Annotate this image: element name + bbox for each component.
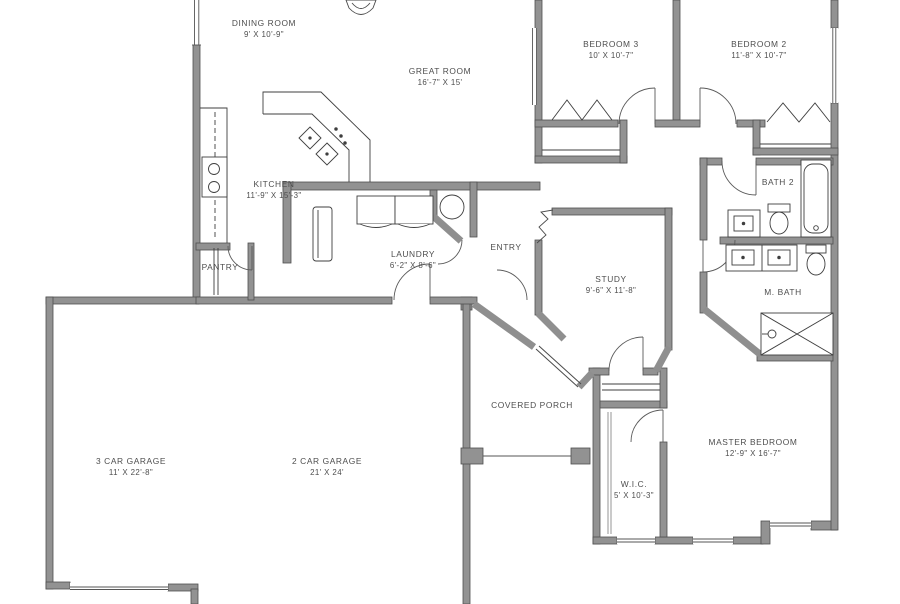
- svg-text:STUDY: STUDY: [595, 274, 626, 284]
- wic-closet-rod: [608, 412, 611, 534]
- svg-text:COVERED PORCH: COVERED PORCH: [491, 400, 573, 410]
- svg-text:LAUNDRY: LAUNDRY: [391, 249, 435, 259]
- corner-fireplace-icon: [346, 0, 376, 15]
- walls: [46, 0, 838, 604]
- svg-text:9' X 10'-9": 9' X 10'-9": [244, 30, 284, 39]
- wic-door: [631, 410, 663, 442]
- label-covered-porch: COVERED PORCH: [491, 400, 573, 410]
- svg-text:6'-2" X 8'-6": 6'-2" X 8'-6": [390, 261, 436, 270]
- floor-plan-page: DINING ROOM 9' X 10'-9" GREAT ROOM 16'-7…: [0, 0, 900, 604]
- label-pantry: PANTRY: [202, 262, 239, 272]
- mbath-toilet-icon: [806, 245, 826, 275]
- svg-text:DINING ROOM: DINING ROOM: [232, 18, 296, 28]
- svg-text:BEDROOM 3: BEDROOM 3: [583, 39, 639, 49]
- angled-walls: [433, 216, 761, 387]
- bedroom3-door: [619, 88, 655, 124]
- bedroom2-door: [700, 88, 736, 124]
- refrigerator-icon: [313, 207, 332, 261]
- svg-text:16'-7" X 15': 16'-7" X 15': [418, 78, 463, 87]
- svg-text:PANTRY: PANTRY: [202, 262, 239, 272]
- study-door: [609, 337, 643, 371]
- water-heater-icon: [440, 195, 464, 219]
- mbath-vanity-icon: [726, 245, 797, 271]
- bath2-toilet-icon: [768, 204, 790, 234]
- svg-text:11'-9" X 15'-3": 11'-9" X 15'-3": [246, 191, 301, 200]
- label-m-bath: M. BATH: [764, 287, 802, 297]
- label-study: STUDY 9'-6" X 11'-8": [586, 274, 636, 295]
- svg-text:3 CAR GARAGE: 3 CAR GARAGE: [96, 456, 166, 466]
- svg-text:9'-6" X 11'-8": 9'-6" X 11'-8": [586, 286, 636, 295]
- svg-text:M. BATH: M. BATH: [764, 287, 802, 297]
- label-bedroom-2: BEDROOM 2 11'-8" X 10'-7": [731, 39, 787, 60]
- front-door: [536, 346, 581, 387]
- water-closet-door: [438, 240, 462, 264]
- svg-text:KITCHEN: KITCHEN: [254, 179, 295, 189]
- entry-door-arc: [497, 270, 527, 300]
- bath2-vanity-icon: [728, 210, 760, 237]
- room-labels: DINING ROOM 9' X 10'-9" GREAT ROOM 16'-7…: [96, 18, 802, 500]
- svg-text:5' X 10'-3": 5' X 10'-3": [614, 491, 654, 500]
- svg-text:21' X 24': 21' X 24': [310, 468, 344, 477]
- windows: [70, 0, 838, 591]
- wall-break-symbol: [537, 210, 553, 243]
- svg-text:BEDROOM 2: BEDROOM 2: [731, 39, 787, 49]
- svg-text:11'-8" X 10'-7": 11'-8" X 10'-7": [731, 51, 786, 60]
- label-laundry: LAUNDRY 6'-2" X 8'-6": [390, 249, 436, 270]
- svg-text:W.I.C.: W.I.C.: [621, 479, 647, 489]
- label-3-car-garage: 3 CAR GARAGE 11' X 22'-8": [96, 456, 166, 477]
- shower-icon: [761, 313, 833, 355]
- svg-text:GREAT ROOM: GREAT ROOM: [409, 66, 471, 76]
- kitchen-sink-icon: [299, 127, 346, 165]
- svg-text:BATH 2: BATH 2: [762, 177, 794, 187]
- range-icon: [202, 157, 227, 197]
- label-bedroom-3: BEDROOM 3 10' X 10'-7": [583, 39, 639, 60]
- label-great-room: GREAT ROOM 16'-7" X 15': [409, 66, 471, 87]
- svg-text:11' X 22'-8": 11' X 22'-8": [109, 468, 153, 477]
- svg-text:MASTER BEDROOM: MASTER BEDROOM: [709, 437, 798, 447]
- svg-text:10' X 10'-7": 10' X 10'-7": [589, 51, 634, 60]
- washer-dryer-icons: [357, 196, 433, 228]
- bed3-bifold-doors: [552, 100, 612, 120]
- label-dining-room: DINING ROOM 9' X 10'-9": [232, 18, 296, 39]
- label-master-bedroom: MASTER BEDROOM 12'-9" X 16'-7": [709, 437, 798, 458]
- label-2-car-garage: 2 CAR GARAGE 21' X 24': [292, 456, 362, 477]
- bath2-door: [722, 161, 756, 195]
- svg-text:2 CAR GARAGE: 2 CAR GARAGE: [292, 456, 362, 466]
- label-wic: W.I.C. 5' X 10'-3": [614, 479, 654, 500]
- linen-shelves: [602, 384, 660, 390]
- floor-plan-drawing: DINING ROOM 9' X 10'-9" GREAT ROOM 16'-7…: [0, 0, 900, 604]
- svg-text:ENTRY: ENTRY: [490, 242, 521, 252]
- label-entry: ENTRY: [490, 242, 521, 252]
- svg-text:12'-9" X 16'-7": 12'-9" X 16'-7": [725, 449, 781, 458]
- label-bath-2: BATH 2: [762, 177, 794, 187]
- bed2-bifold-doors: [767, 103, 830, 122]
- bathtub-icon: [801, 160, 831, 237]
